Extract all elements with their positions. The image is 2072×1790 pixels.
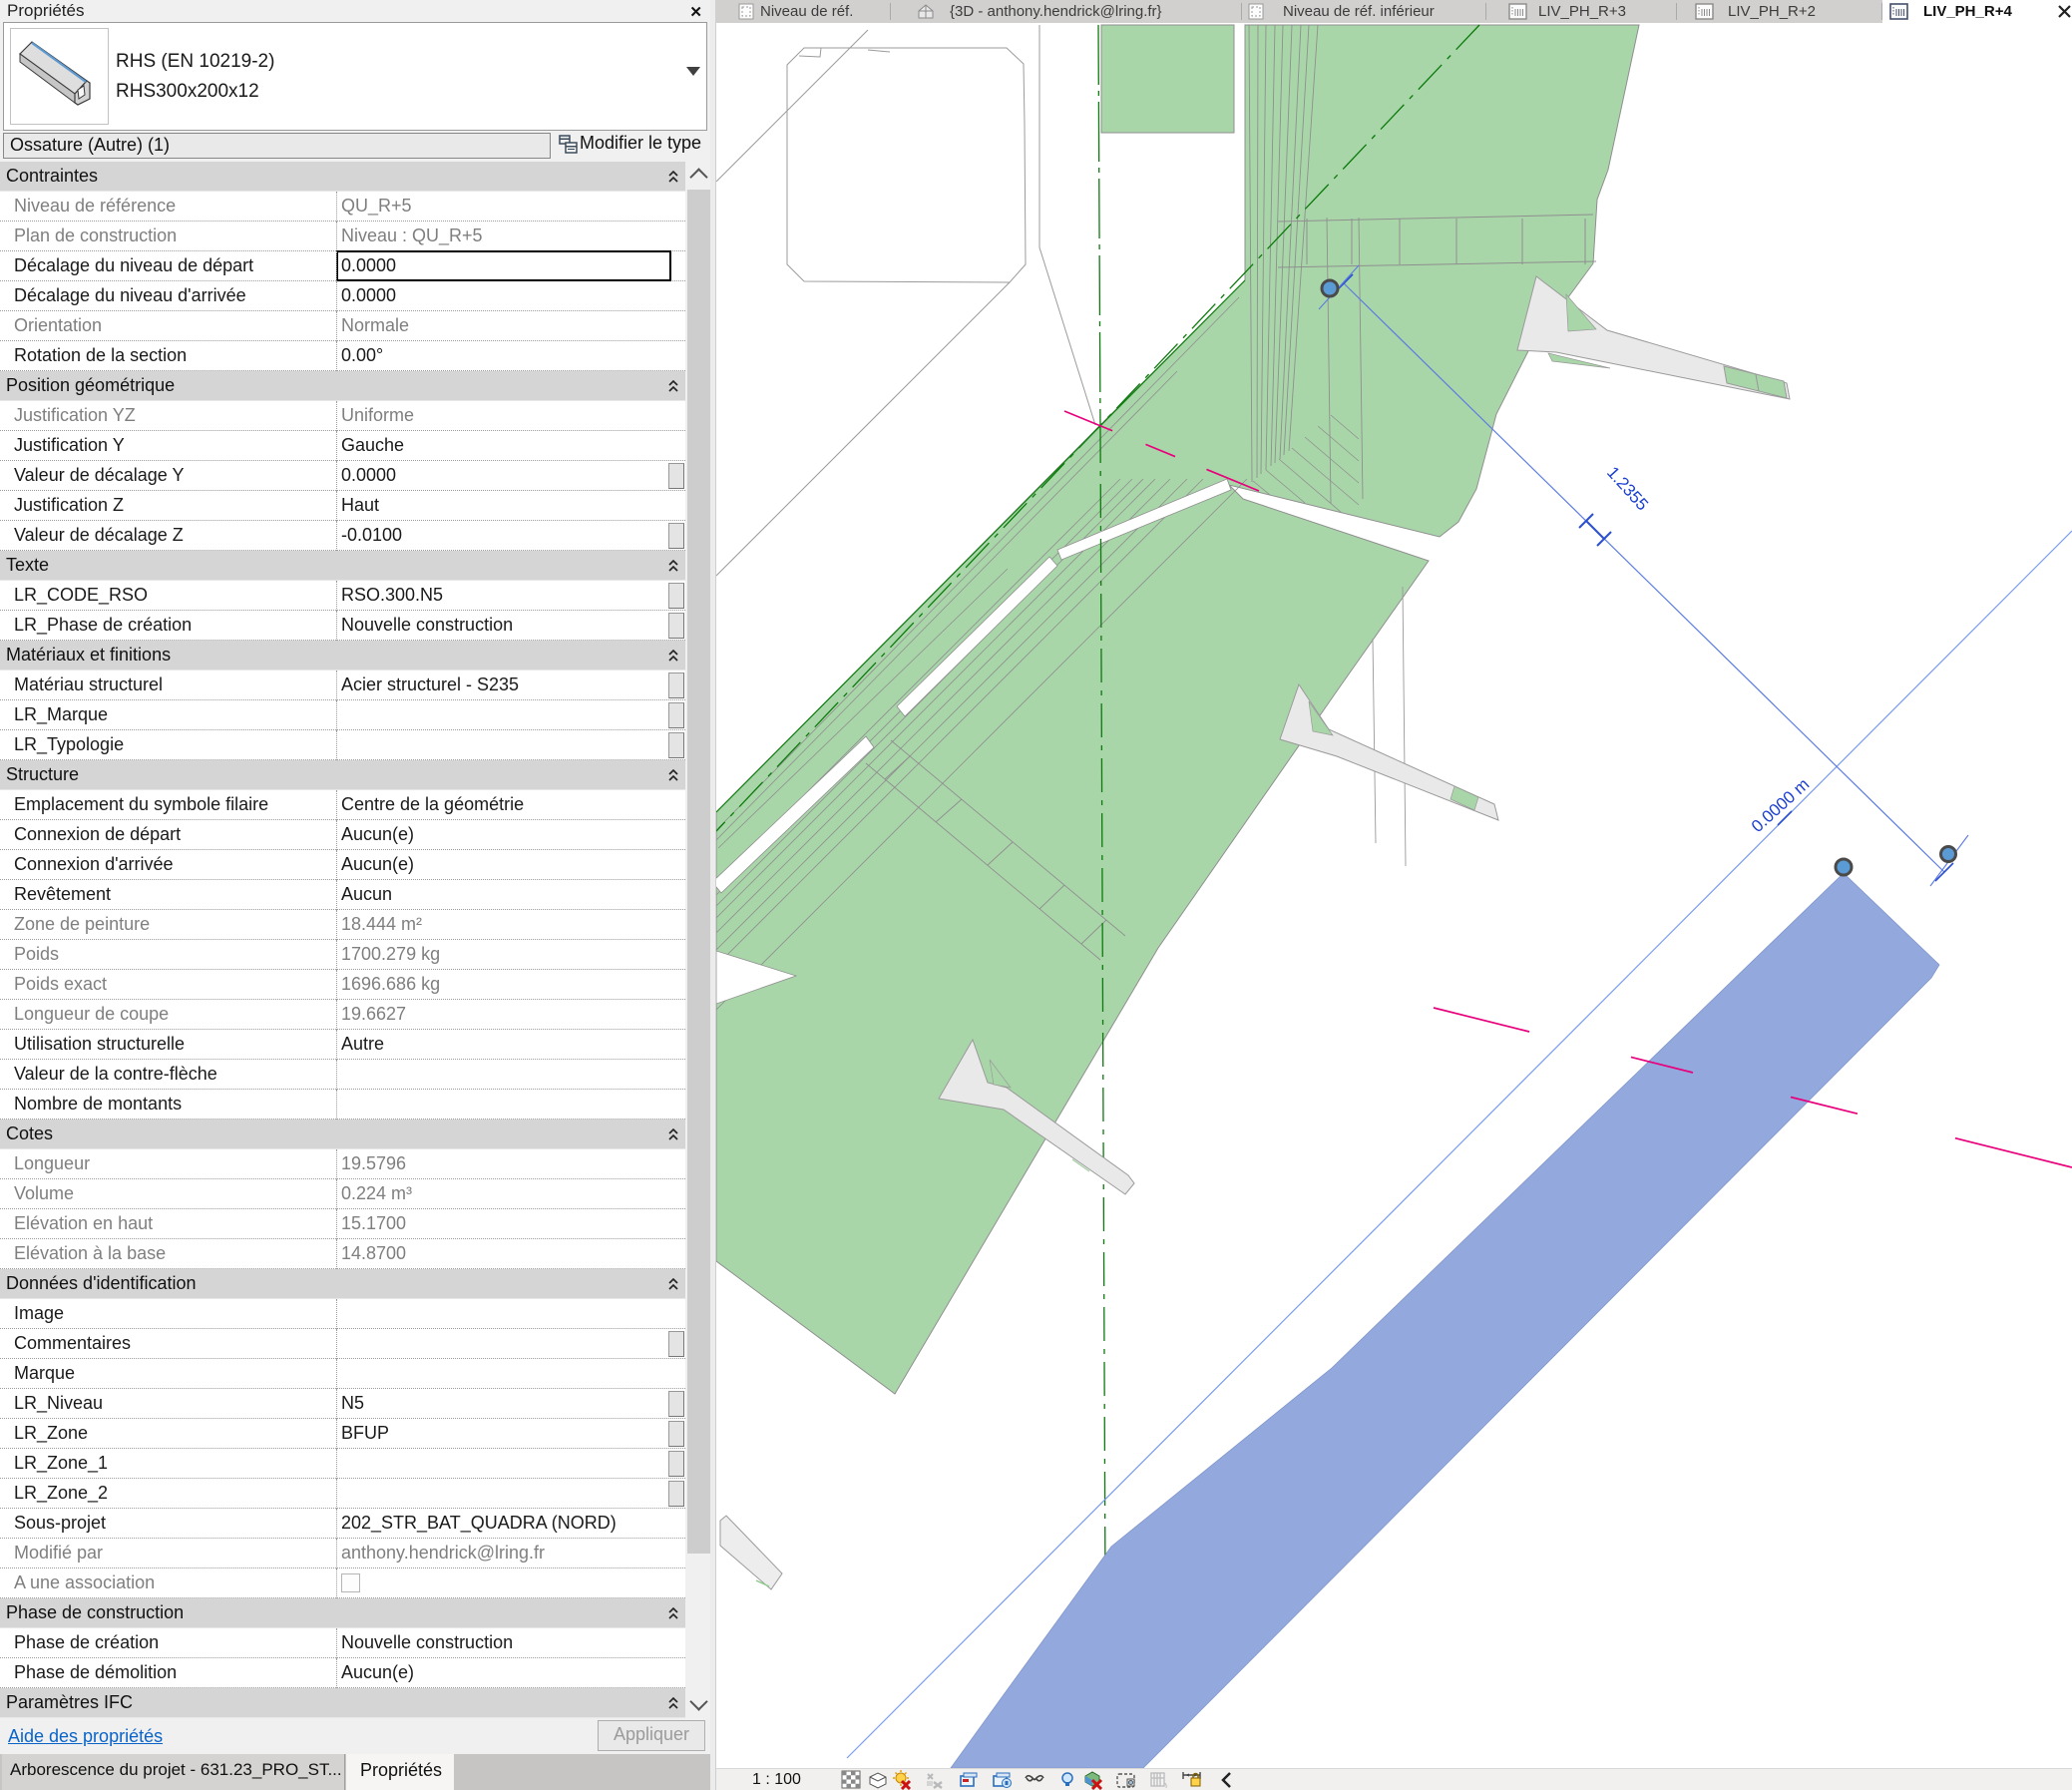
svg-text:0.0000 m: 0.0000 m	[1748, 774, 1813, 836]
svg-text:1.2355: 1.2355	[1603, 463, 1652, 514]
